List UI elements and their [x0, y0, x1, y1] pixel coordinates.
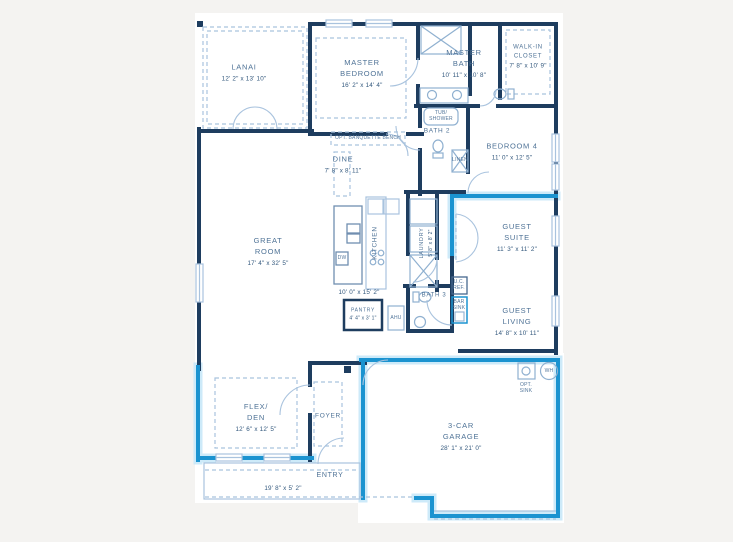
- label-wh: WH: [545, 368, 554, 374]
- label-opt-sink: OPT. SINK: [520, 382, 532, 394]
- label-guest-living: GUEST LIVING14' 8" x 10' 11": [495, 306, 539, 338]
- label-master-bath: MASTER BATH10' 11" x 10' 8": [442, 48, 486, 80]
- label-kitchen-dims: 10' 0" x 15' 2": [338, 287, 379, 297]
- label-laundry: LAUNDRY5' 8" x 8' 2": [419, 227, 435, 258]
- label-ahu: AHU: [390, 315, 401, 321]
- label-uc-ref: U.C. REF.: [453, 279, 465, 291]
- label-bar-sink: BAR SINK: [453, 299, 465, 311]
- label-walk-in-closet: WALK-IN CLOSET7' 8" x 10' 9": [509, 43, 546, 71]
- label-flex-den: FLEX/ DEN12' 6" x 12' 5": [235, 402, 276, 434]
- label-kitchen: KITCHEN: [370, 226, 379, 259]
- label-entry-dims: 19' 8" x 5' 2": [264, 483, 301, 493]
- label-lanai: LANAI12' 2" x 13' 10": [222, 63, 267, 84]
- label-guest-suite: GUEST SUITE11' 3" x 11' 2": [497, 222, 537, 254]
- label-bath2: BATH 2: [424, 126, 450, 135]
- label-linen: LINEN: [452, 157, 468, 163]
- label-bath3: BATH 3: [422, 292, 447, 301]
- label-dine: DINE7' 8" x 8' 11": [325, 155, 362, 176]
- label-entry: ENTRY: [316, 471, 343, 481]
- label-pantry: PANTRY4' 4" x 3' 1": [349, 307, 376, 323]
- label-great-room: GREAT ROOM17' 4" x 32' 5": [247, 236, 288, 268]
- floor-plan-canvas: LANAI12' 2" x 13' 10" MASTER BEDROOM16' …: [0, 0, 733, 542]
- label-master-bedroom: MASTER BEDROOM16' 2" x 14' 4": [340, 58, 384, 90]
- label-bedroom4: BEDROOM 411' 0" x 12' 5": [486, 142, 537, 163]
- label-garage: 3-CAR GARAGE28' 1" x 21' 0": [440, 421, 481, 453]
- label-foyer: FOYER: [315, 411, 341, 420]
- label-opt-banquette: OPT. BANQUETTE BENCH: [328, 135, 408, 141]
- label-tub-shower: TUB/ SHOWER: [429, 110, 453, 122]
- label-dw: DW: [338, 255, 347, 261]
